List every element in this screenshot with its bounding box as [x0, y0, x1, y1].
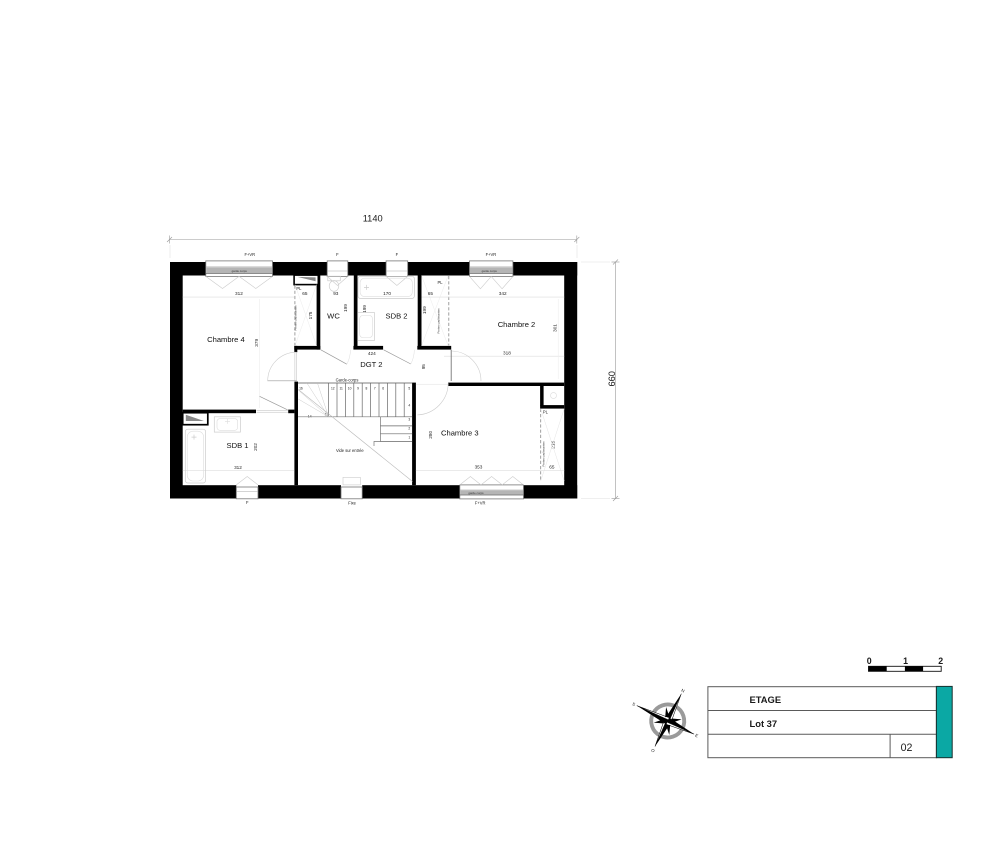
svg-text:garde corps: garde corps [468, 491, 484, 495]
svg-text:SDB 1: SDB 1 [227, 441, 249, 450]
svg-text:0: 0 [867, 656, 872, 666]
svg-text:1: 1 [903, 656, 908, 666]
svg-text:14: 14 [308, 414, 312, 418]
svg-text:199: 199 [362, 305, 367, 313]
svg-text:318: 318 [503, 351, 511, 356]
svg-text:312: 312 [235, 291, 243, 296]
svg-text:DGT 2: DGT 2 [360, 360, 382, 369]
svg-text:02: 02 [901, 742, 913, 754]
svg-text:Vide sur entrée: Vide sur entrée [336, 448, 364, 453]
svg-text:WC: WC [327, 312, 340, 321]
svg-text:8: 8 [365, 386, 367, 390]
svg-text:PL: PL [438, 280, 444, 285]
svg-text:2: 2 [938, 656, 943, 666]
svg-text:Chambre 2: Chambre 2 [498, 320, 536, 329]
svg-text:280: 280 [428, 431, 433, 439]
svg-text:garde corps: garde corps [232, 269, 248, 273]
svg-text:3: 3 [408, 417, 410, 421]
svg-text:175: 175 [308, 311, 313, 319]
svg-text:2: 2 [408, 427, 410, 431]
svg-text:F+VR: F+VR [486, 252, 497, 257]
svg-text:1140: 1140 [363, 214, 383, 224]
svg-text:424: 424 [368, 351, 376, 356]
svg-text:9: 9 [357, 386, 359, 390]
svg-text:301: 301 [552, 324, 557, 332]
svg-text:379: 379 [254, 339, 259, 347]
svg-text:Chambre 4: Chambre 4 [207, 335, 245, 344]
svg-text:Portes coulissantes: Portes coulissantes [294, 305, 298, 331]
svg-text:199: 199 [343, 304, 348, 312]
svg-text:170: 170 [383, 291, 391, 296]
svg-text:PL: PL [296, 286, 302, 291]
svg-text:ETAGE: ETAGE [750, 694, 782, 705]
svg-text:1: 1 [408, 436, 410, 440]
svg-text:Portes coulissantes: Portes coulissantes [542, 441, 546, 467]
svg-text:garde corps: garde corps [482, 269, 498, 273]
svg-text:10: 10 [348, 386, 352, 390]
svg-text:199: 199 [422, 306, 427, 314]
svg-text:Portes coulissantes: Portes coulissantes [437, 308, 441, 334]
svg-text:65: 65 [428, 291, 434, 296]
svg-text:65: 65 [549, 464, 555, 469]
svg-text:SDB 2: SDB 2 [386, 312, 408, 321]
svg-text:Chambre 3: Chambre 3 [441, 429, 479, 438]
svg-text:312: 312 [234, 465, 242, 470]
svg-text:Garde-corps: Garde-corps [336, 377, 359, 382]
svg-text:4: 4 [408, 403, 410, 407]
svg-text:12: 12 [331, 386, 335, 390]
svg-text:95: 95 [421, 364, 426, 370]
svg-text:11: 11 [339, 386, 343, 390]
svg-text:6: 6 [382, 386, 384, 390]
svg-text:F+VR: F+VR [245, 252, 256, 257]
svg-text:7: 7 [374, 386, 376, 390]
svg-text:PL: PL [543, 410, 549, 415]
svg-text:Lot 37: Lot 37 [750, 718, 778, 729]
svg-text:202: 202 [253, 443, 258, 451]
svg-text:16: 16 [299, 386, 303, 390]
svg-text:65: 65 [302, 291, 308, 296]
svg-text:353: 353 [475, 465, 483, 470]
svg-text:Fixe: Fixe [348, 500, 356, 505]
svg-text:F+VR: F+VR [475, 501, 486, 506]
svg-text:342: 342 [499, 291, 507, 296]
svg-text:5: 5 [408, 386, 410, 390]
